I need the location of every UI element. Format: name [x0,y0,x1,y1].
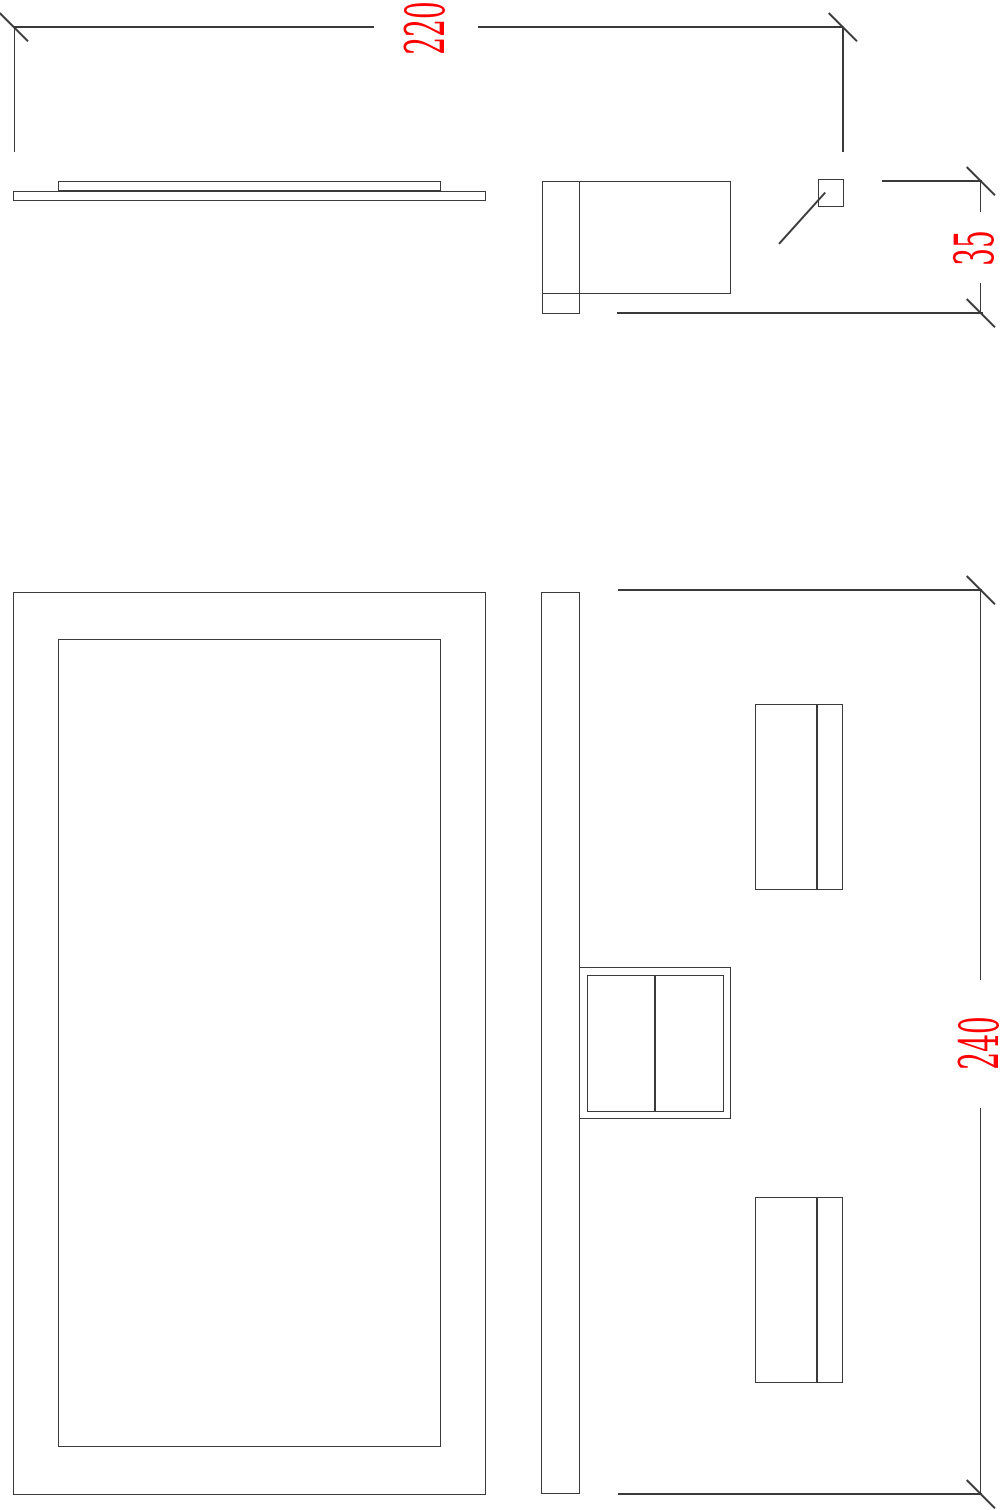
dim-depth-label: 35 [948,230,1000,266]
dim-width-ext-left [14,27,16,152]
end-view-foot [542,293,581,314]
dim-height-line-upper [980,590,982,980]
bracket-top-divider [816,705,818,890]
detail-leader-line [778,191,825,243]
dim-depth-line-upper [980,181,982,212]
dim-height-label: 240 [953,1016,1000,1070]
end-view-body [542,181,731,295]
top-view-upper-plate [58,181,441,191]
end-view-panel-divider [579,181,581,313]
dim-width-label: 220 [399,1,453,55]
dim-depth-ext-bottom [617,312,983,314]
side-view-panel [541,592,580,1495]
dim-width-ext-right [842,27,844,152]
dim-height-line-lower [980,1108,982,1495]
top-view-base-plate [13,191,486,201]
bracket-bottom [755,1197,843,1384]
dim-width-line-right [478,26,843,28]
bracket-middle-divider [654,975,656,1111]
bracket-bottom-divider [816,1197,818,1383]
dim-height-ext-top [618,589,982,591]
dim-height-ext-bottom [618,1493,982,1495]
bracket-top [755,704,843,890]
dim-depth-line-lower [980,283,982,314]
dim-width-line-left [14,26,374,28]
front-view-inner-panel [58,639,441,1447]
cad-drawing-canvas: 220 35 240 [0,0,1000,1510]
dim-depth-ext-top [882,180,982,182]
